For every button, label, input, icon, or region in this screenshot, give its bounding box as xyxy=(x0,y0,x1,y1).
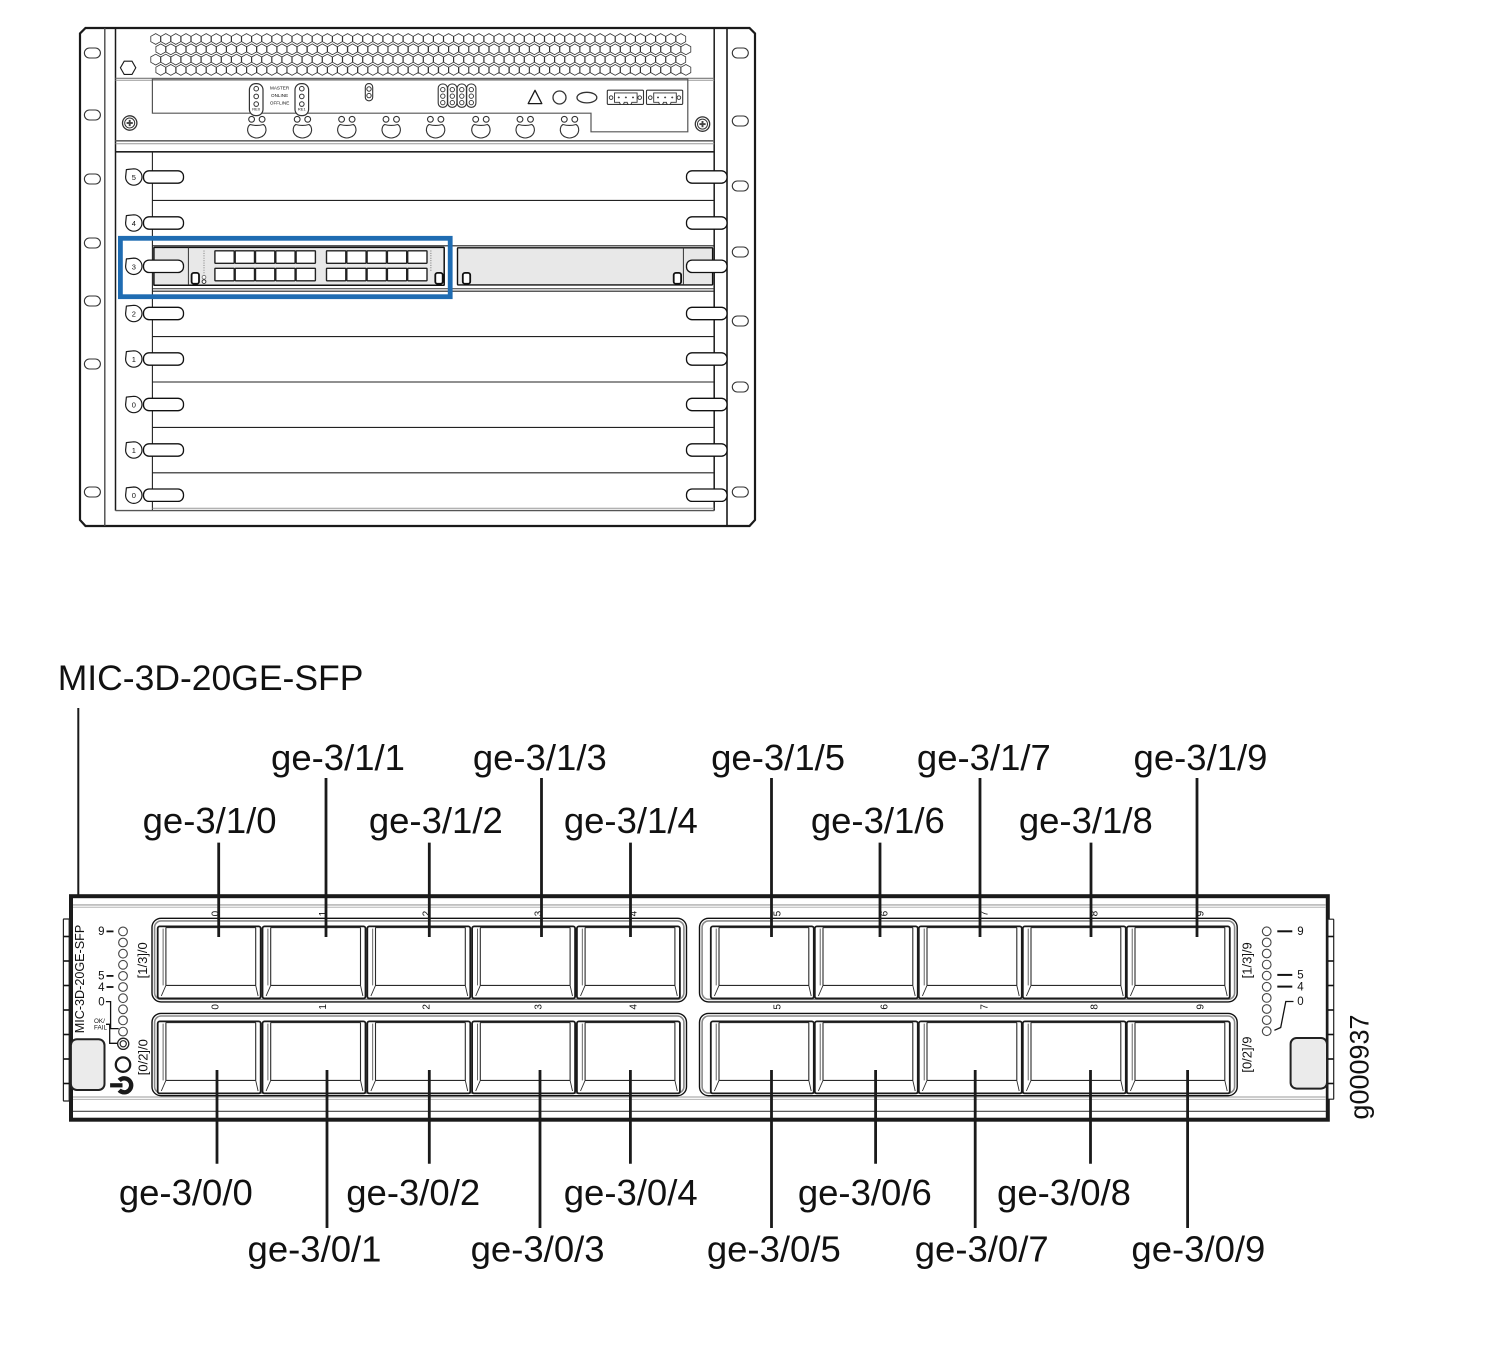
svg-text:[1/3]/9: [1/3]/9 xyxy=(1240,942,1255,978)
svg-text:ge-3/0/2: ge-3/0/2 xyxy=(346,1172,480,1213)
svg-text:0: 0 xyxy=(211,1004,222,1010)
svg-text:g000937: g000937 xyxy=(1344,1014,1374,1119)
svg-text:9: 9 xyxy=(1196,1004,1207,1010)
svg-text:ge-3/1/3: ge-3/1/3 xyxy=(473,737,607,778)
svg-text:OFFLINE: OFFLINE xyxy=(270,101,289,106)
svg-text:9: 9 xyxy=(98,926,104,938)
svg-text:[0/2]/9: [0/2]/9 xyxy=(1240,1037,1255,1073)
svg-text:RE0: RE0 xyxy=(252,107,261,112)
svg-text:FAIL: FAIL xyxy=(94,1025,107,1032)
svg-text:[1/3]/0: [1/3]/0 xyxy=(135,942,150,978)
svg-text:ge-3/0/1: ge-3/0/1 xyxy=(248,1229,382,1270)
svg-text:8: 8 xyxy=(1090,1004,1101,1010)
svg-text:ge-3/1/9: ge-3/1/9 xyxy=(1134,737,1268,778)
svg-text:1: 1 xyxy=(132,355,136,364)
svg-text:ge-3/1/6: ge-3/1/6 xyxy=(811,800,945,841)
svg-text:ge-3/1/2: ge-3/1/2 xyxy=(369,800,503,841)
svg-text:ge-3/0/4: ge-3/0/4 xyxy=(564,1172,698,1213)
svg-text:ge-3/0/7: ge-3/0/7 xyxy=(915,1229,1049,1270)
svg-text:2: 2 xyxy=(422,1004,433,1010)
svg-text:ge-3/0/8: ge-3/0/8 xyxy=(997,1172,1131,1213)
svg-text:6: 6 xyxy=(880,1004,891,1010)
svg-text:ONLINE: ONLINE xyxy=(271,93,288,98)
svg-text:1: 1 xyxy=(318,910,329,916)
svg-text:1: 1 xyxy=(318,1004,329,1010)
svg-text:3: 3 xyxy=(534,910,545,916)
svg-text:3: 3 xyxy=(132,262,136,271)
svg-text:2: 2 xyxy=(422,910,433,916)
svg-text:5: 5 xyxy=(773,1004,784,1010)
svg-text:ge-3/0/3: ge-3/0/3 xyxy=(471,1229,605,1270)
svg-text:RE1: RE1 xyxy=(298,107,307,112)
svg-text:ge-3/1/0: ge-3/1/0 xyxy=(143,800,277,841)
svg-text:1: 1 xyxy=(132,446,136,455)
svg-text:4: 4 xyxy=(1297,981,1304,993)
svg-text:7: 7 xyxy=(980,1004,991,1010)
svg-text:MIC-3D-20GE-SFP: MIC-3D-20GE-SFP xyxy=(58,658,364,698)
svg-text:ge-3/0/6: ge-3/0/6 xyxy=(798,1172,932,1213)
svg-text:0: 0 xyxy=(98,997,104,1009)
svg-text:3: 3 xyxy=(534,1004,545,1010)
svg-text:MASTER: MASTER xyxy=(270,86,290,91)
svg-text:ge-3/1/7: ge-3/1/7 xyxy=(917,737,1051,778)
svg-text:0: 0 xyxy=(132,401,136,410)
svg-text:9: 9 xyxy=(1297,926,1303,938)
svg-text:5: 5 xyxy=(1297,970,1303,982)
svg-text:ge-3/1/1: ge-3/1/1 xyxy=(271,737,405,778)
svg-text:4: 4 xyxy=(132,219,136,228)
svg-text:MIC-3D-20GE-SFP: MIC-3D-20GE-SFP xyxy=(73,925,87,1033)
svg-text:ge-3/0/5: ge-3/0/5 xyxy=(707,1229,841,1270)
svg-text:4: 4 xyxy=(98,982,105,994)
svg-text:5: 5 xyxy=(773,910,784,916)
svg-text:4: 4 xyxy=(629,1004,640,1010)
svg-text:ge-3/1/4: ge-3/1/4 xyxy=(564,800,698,841)
svg-text:ge-3/1/8: ge-3/1/8 xyxy=(1019,800,1153,841)
svg-text:[0/2]/0: [0/2]/0 xyxy=(136,1039,151,1075)
svg-text:2: 2 xyxy=(132,310,136,319)
svg-text:ge-3/0/0: ge-3/0/0 xyxy=(119,1172,253,1213)
svg-text:ge-3/0/9: ge-3/0/9 xyxy=(1131,1229,1265,1270)
svg-text:0: 0 xyxy=(1297,996,1303,1008)
svg-text:5: 5 xyxy=(132,173,136,182)
svg-text:0: 0 xyxy=(132,491,136,500)
svg-text:ge-3/1/5: ge-3/1/5 xyxy=(711,737,845,778)
